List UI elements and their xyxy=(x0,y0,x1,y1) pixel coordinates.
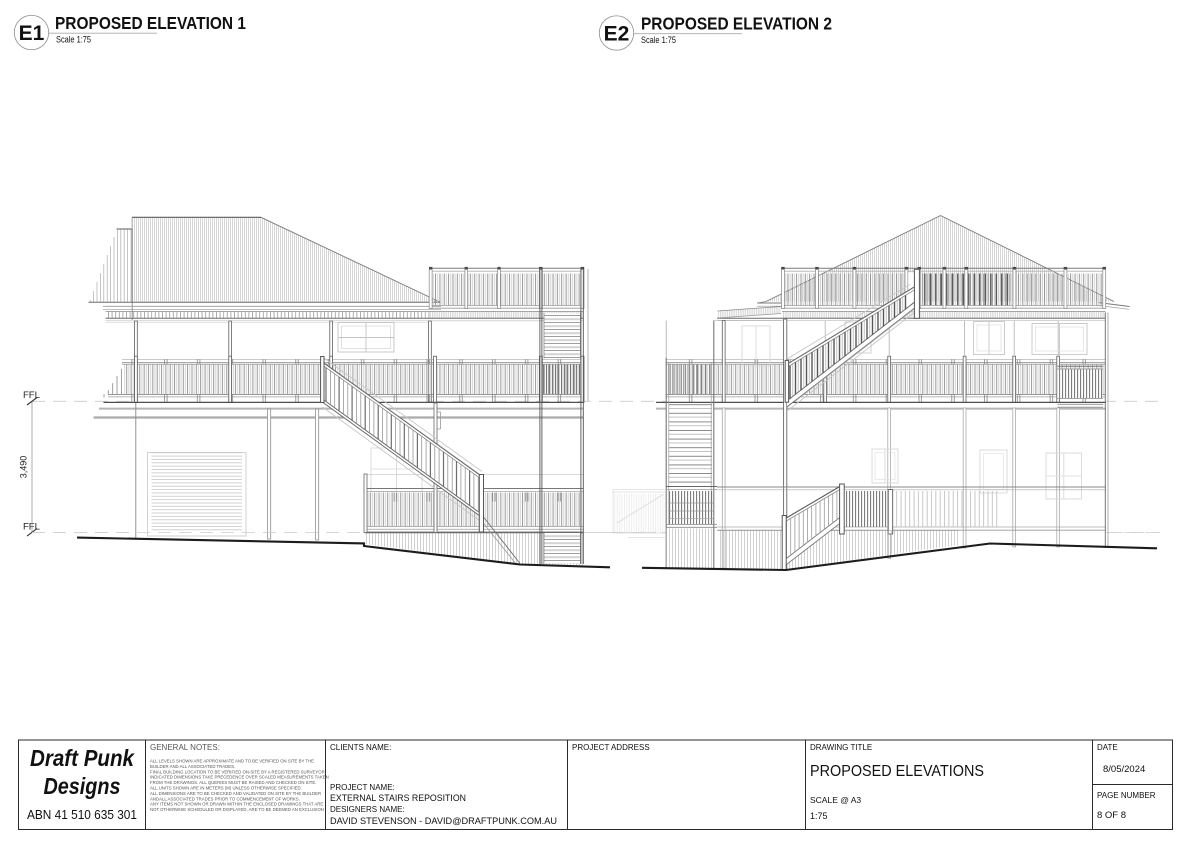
svg-text:3,490: 3,490 xyxy=(19,456,29,479)
svg-text:EXTERNAL STAIRS REPOSITION: EXTERNAL STAIRS REPOSITION xyxy=(330,793,466,804)
svg-text:ANY ITEMS NOT SHOWN OR DRAWN W: ANY ITEMS NOT SHOWN OR DRAWN WITHIN THE … xyxy=(150,802,323,807)
svg-text:FROM THE DRAWINGS. ALL QUERIES: FROM THE DRAWINGS. ALL QUERIES MUST BE R… xyxy=(150,780,316,785)
svg-text:PROJECT NAME:: PROJECT NAME: xyxy=(330,783,395,792)
svg-text:E1: E1 xyxy=(19,22,45,45)
svg-text:PROPOSED ELEVATION 1: PROPOSED ELEVATION 1 xyxy=(55,13,246,33)
svg-text:1:75: 1:75 xyxy=(810,811,828,821)
svg-text:PROPOSED ELEVATION 2: PROPOSED ELEVATION 2 xyxy=(641,14,832,34)
svg-text:Designs: Designs xyxy=(44,773,121,799)
svg-text:Scale 1:75: Scale 1:75 xyxy=(56,35,91,45)
svg-text:ALL UNITS SHOWN ARE IN METERS: ALL UNITS SHOWN ARE IN METERS (M) UNLESS… xyxy=(150,786,302,791)
svg-text:8/05/2024: 8/05/2024 xyxy=(1103,764,1145,775)
svg-text:FFL: FFL xyxy=(23,390,40,401)
svg-text:Draft Punk: Draft Punk xyxy=(30,745,135,771)
svg-text:ALL DIMENSIONS ARE TO BE CHECK: ALL DIMENSIONS ARE TO BE CHECKED AND VAL… xyxy=(150,791,321,796)
svg-text:FFL: FFL xyxy=(23,522,40,533)
svg-text:ALL LEVELS SHOWN ARE APPROXIMA: ALL LEVELS SHOWN ARE APPROXIMATE AND TO … xyxy=(150,759,314,764)
svg-text:ABN 41 510 635 301: ABN 41 510 635 301 xyxy=(27,808,137,822)
svg-text:PAGE NUMBER: PAGE NUMBER xyxy=(1097,791,1156,800)
svg-text:DAVID STEVENSON - DAVID@DRAFTP: DAVID STEVENSON - DAVID@DRAFTPUNK.COM.AU xyxy=(330,816,557,827)
svg-text:DATE: DATE xyxy=(1097,743,1118,752)
svg-text:Scale 1:75: Scale 1:75 xyxy=(641,35,676,45)
svg-text:PROJECT ADDRESS: PROJECT ADDRESS xyxy=(572,743,650,752)
svg-text:PROPOSED ELEVATIONS: PROPOSED ELEVATIONS xyxy=(810,763,984,780)
svg-text:8 OF 8: 8 OF 8 xyxy=(1097,810,1126,821)
svg-text:CLIENTS NAME:: CLIENTS NAME: xyxy=(330,743,391,752)
svg-text:ANDALL ASSOCIATED TRADES PRIOR: ANDALL ASSOCIATED TRADES PRIOR TO COMMEN… xyxy=(150,796,300,801)
svg-text:FINAL BUILDING LOCATION TO BE: FINAL BUILDING LOCATION TO BE VERIFIED O… xyxy=(150,769,326,774)
svg-text:GENERAL NOTES:: GENERAL NOTES: xyxy=(150,743,220,752)
svg-text:INDICATED DIMENSIONS TAKE PREC: INDICATED DIMENSIONS TAKE PRECEDENCE OVE… xyxy=(150,775,329,780)
svg-text:BUILDER AND ALL ASSOCIATED TRA: BUILDER AND ALL ASSOCIATED TRADES. xyxy=(150,764,235,769)
svg-text:DESIGNERS NAME:: DESIGNERS NAME: xyxy=(330,805,405,814)
svg-text:E2: E2 xyxy=(604,23,630,46)
svg-text:DRAWING TITLE: DRAWING TITLE xyxy=(810,743,872,752)
svg-text:NOT OTHERWISE SCHEDULED OR DIS: NOT OTHERWISE SCHEDULED OR DISPLAYED, AR… xyxy=(150,807,324,812)
svg-text:SCALE @ A3: SCALE @ A3 xyxy=(810,795,861,805)
